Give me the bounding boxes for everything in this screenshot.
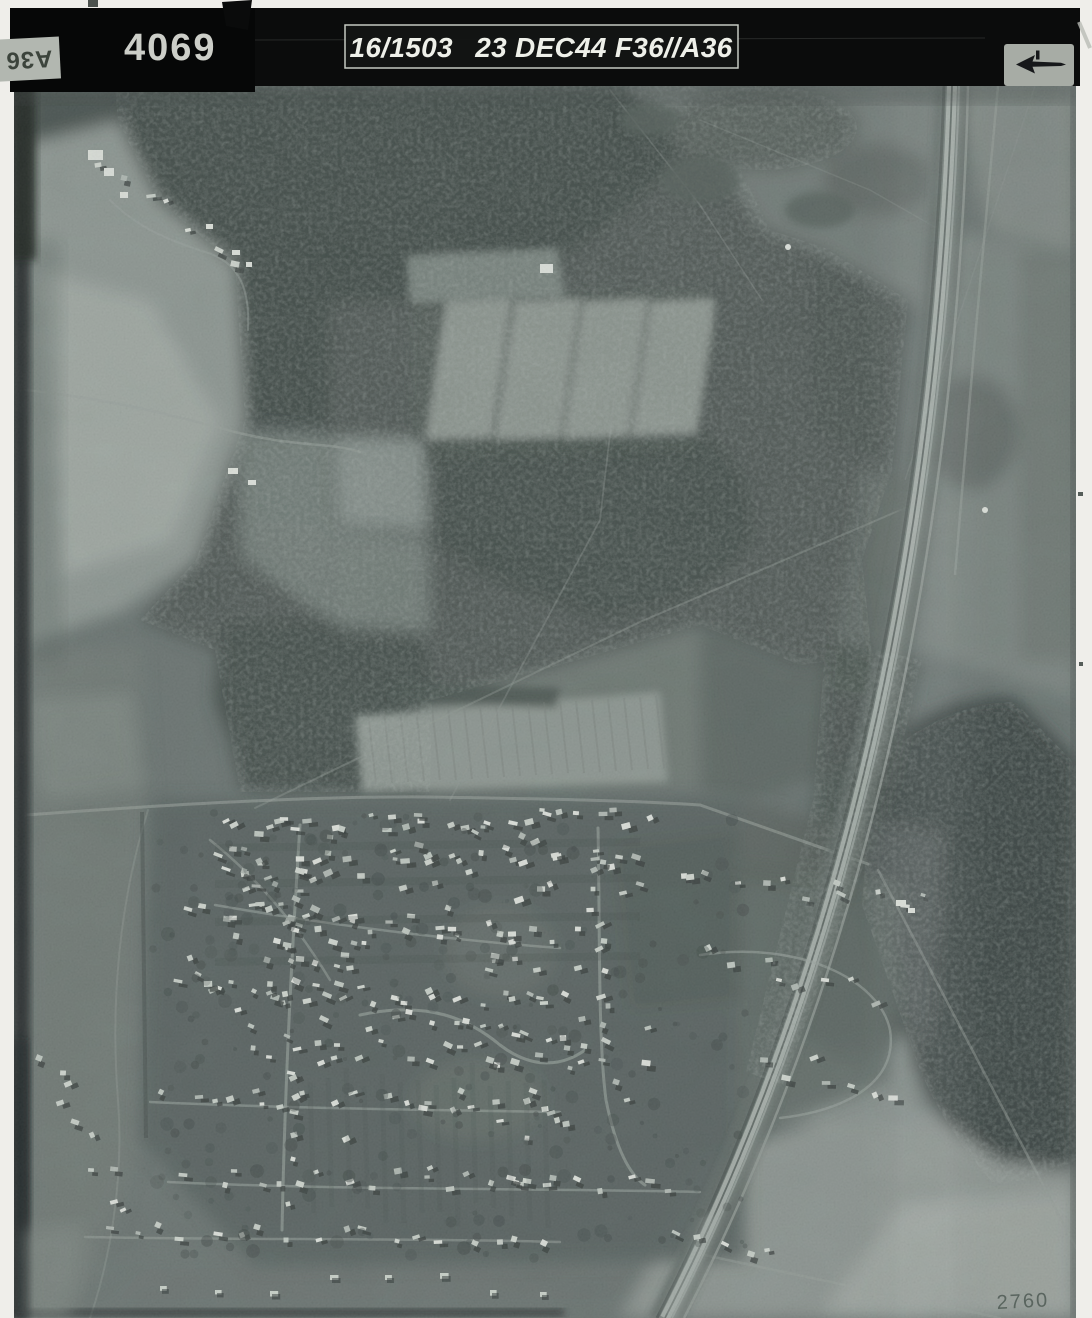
svg-text:4069: 4069 [124,27,217,69]
svg-text:2760: 2760 [996,1289,1050,1314]
svg-text:16/1503 23 DEC44 F36//A36: 16/1503 23 DEC44 F36//A36 [350,32,733,63]
svg-text:A36: A36 [5,44,53,73]
